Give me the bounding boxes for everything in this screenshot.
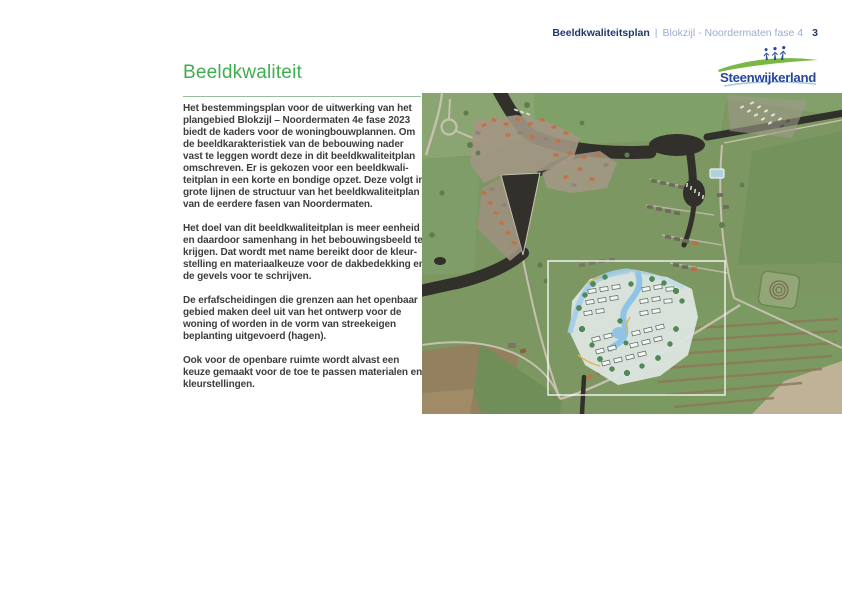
marina-basin — [683, 179, 705, 207]
header-separator: | — [655, 27, 658, 39]
swimming-pool — [710, 169, 724, 178]
logo-figures-icon — [763, 46, 786, 61]
page-header: Beeldkwaliteitsplan | Blokzijl - Noorder… — [552, 27, 818, 39]
aerial-photo — [422, 93, 842, 414]
municipality-logo: Steenwijkerland — [716, 45, 820, 91]
body-paragraph: Het bestemmingsplan voor de uitwerking v… — [183, 103, 419, 211]
document-title: Beeldkwaliteitsplan — [552, 27, 649, 39]
document-subtitle: Blokzijl - Noordermaten fase 4 — [663, 27, 804, 39]
logo-graphic: Steenwijkerland — [716, 45, 820, 91]
page-number: 3 — [812, 27, 818, 39]
body-paragraph: De erfafscheidingen die grenzen aan het … — [183, 295, 419, 343]
body-text-column: Het bestemmingsplan voor de uitwerking v… — [183, 103, 419, 403]
document-page: Beeldkwaliteitsplan | Blokzijl - Noorder… — [0, 0, 842, 595]
body-paragraph: Ook voor de openbare ruimte wordt alvast… — [183, 355, 419, 391]
labyrinth-garden — [758, 271, 800, 310]
logo-wordmark: Steenwijkerland — [720, 71, 816, 85]
aerial-photo-graphic — [422, 93, 842, 414]
body-paragraph: Het doel van dit beeldkwaliteitplan is m… — [183, 223, 419, 283]
section-title: Beeldkwaliteit — [183, 62, 302, 84]
title-rule — [183, 96, 421, 97]
